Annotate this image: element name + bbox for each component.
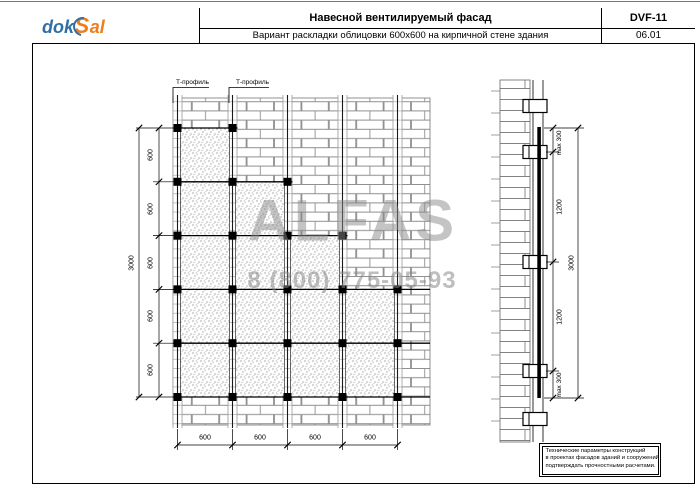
left-dim-600-5: 600 (147, 364, 154, 376)
section-brackets (523, 100, 547, 426)
watermark-brand: ALFAS (248, 188, 458, 255)
left-dim-total-3000: 3000 (128, 255, 135, 271)
elevation-left-dimensions (136, 128, 174, 397)
left-dim-600-4: 600 (147, 310, 154, 322)
bottom-dim-600-1: 600 (199, 435, 211, 442)
section-dim-1200-bottom: 1200 (556, 309, 563, 325)
bottom-dim-600-2: 600 (254, 435, 266, 442)
bottom-dim-600-4: 600 (364, 435, 376, 442)
section-dim-total-3000: 3000 (568, 255, 575, 271)
tprofile-label-1: Т-профиль (176, 80, 209, 87)
section-wall-toothing (491, 91, 500, 421)
left-dim-600-1: 600 (147, 149, 154, 161)
section-t-profile (537, 127, 541, 398)
section-dim-max300-top: max 300 (556, 131, 563, 156)
left-dim-600-2: 600 (147, 203, 154, 215)
drawing-sheet: dokSal Навесной вентилируемый фасад Вари… (0, 0, 700, 495)
bottom-dim-600-3: 600 (309, 435, 321, 442)
watermark-phone: 8 (800) 775-05-93 (247, 267, 456, 295)
section-dim-1200-top: 1200 (556, 199, 563, 215)
left-dim-600-3: 600 (147, 257, 154, 269)
section-dim-max300-bottom: max 300 (556, 372, 563, 397)
section-dimensions (544, 128, 584, 398)
tprofile-label-2: Т-профиль (236, 80, 269, 87)
